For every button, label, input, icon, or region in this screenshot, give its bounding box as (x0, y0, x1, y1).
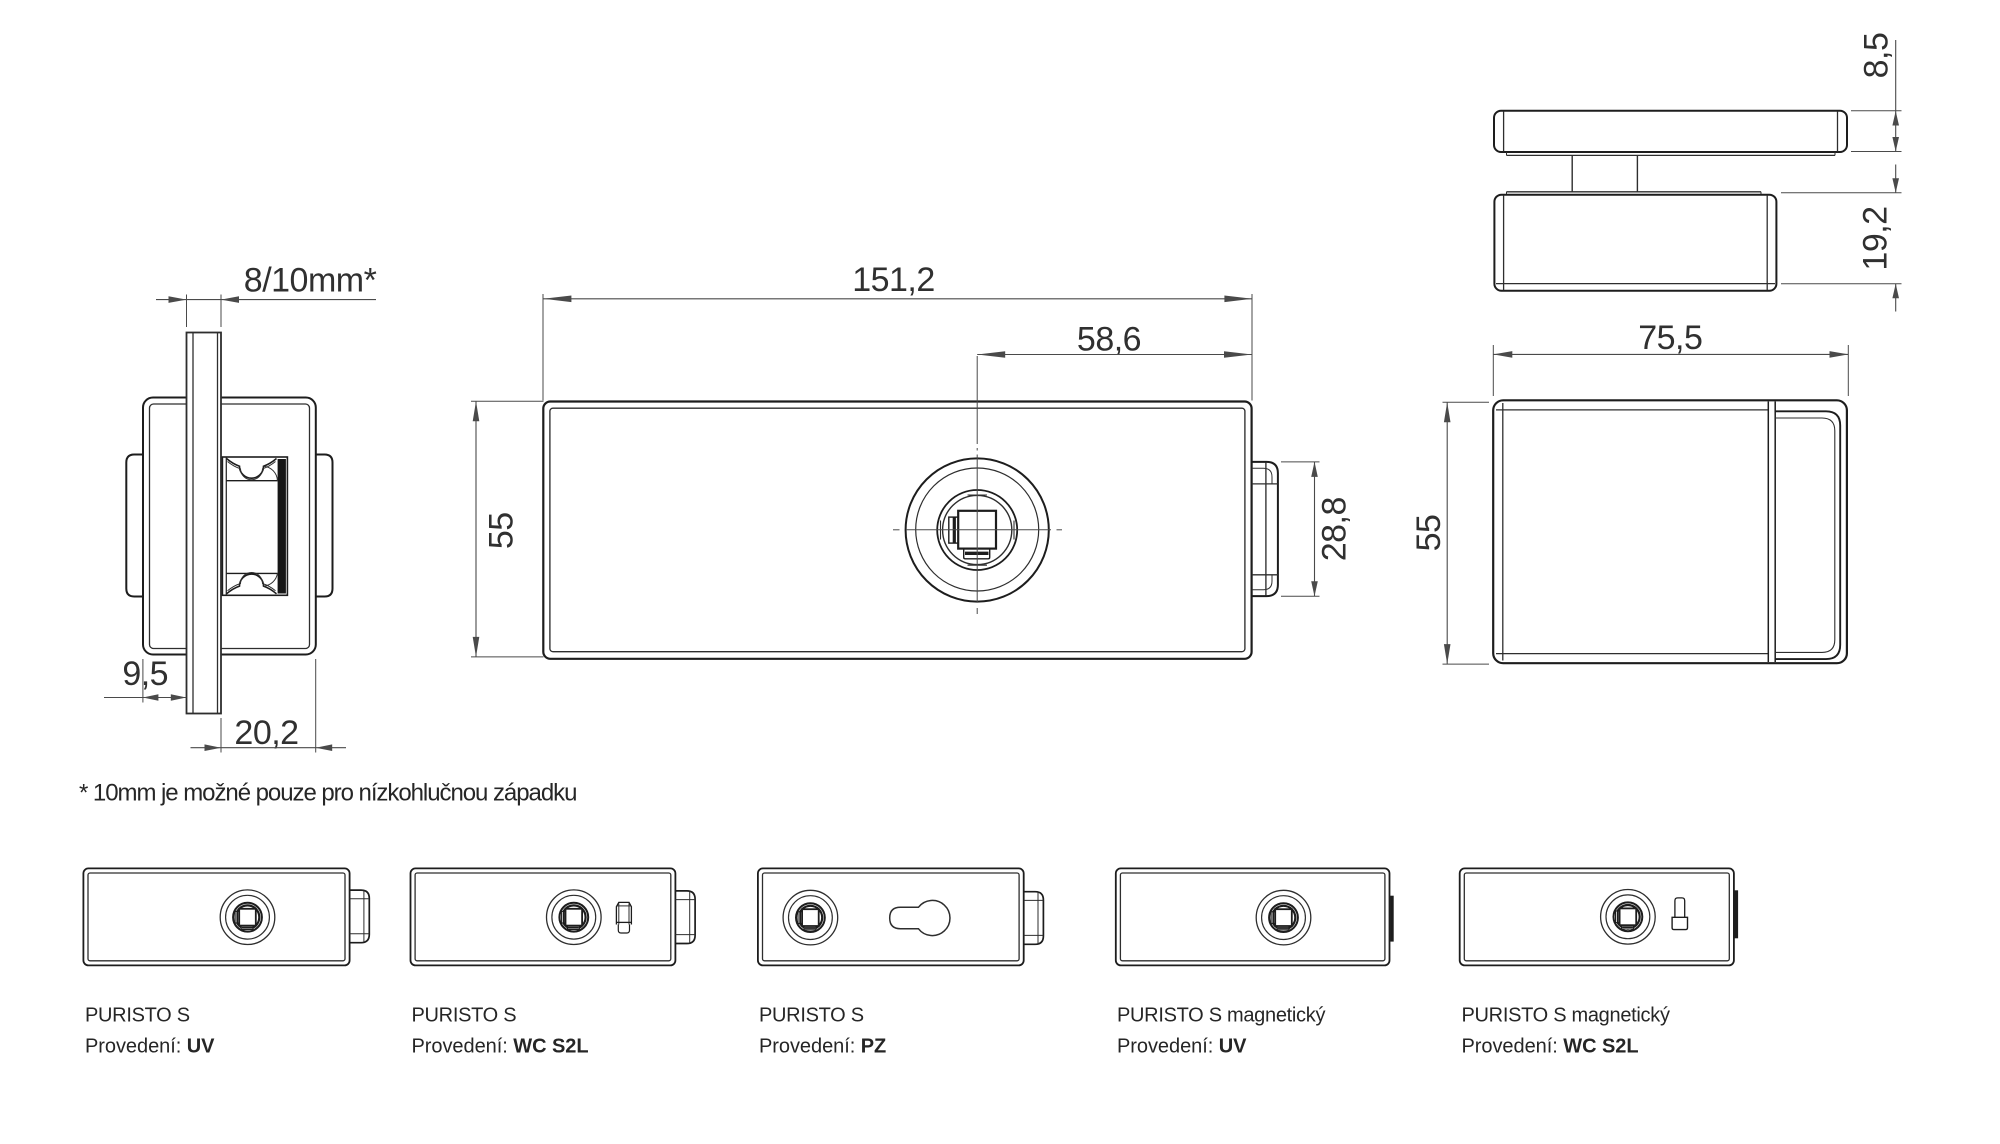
svg-text:58,6: 58,6 (1077, 321, 1141, 359)
svg-text:55: 55 (483, 512, 521, 549)
svg-text:Provedení: UV: Provedení: UV (85, 1036, 215, 1058)
svg-text:8/10mm*: 8/10mm* (244, 262, 377, 300)
svg-text:19,2: 19,2 (1857, 206, 1895, 270)
svg-text:9,5: 9,5 (122, 655, 168, 693)
svg-text:8,5: 8,5 (1858, 33, 1896, 79)
svg-text:Provedení: UV: Provedení: UV (1117, 1036, 1247, 1058)
svg-text:75,5: 75,5 (1638, 319, 1702, 357)
svg-text:PURISTO S: PURISTO S (85, 1005, 190, 1027)
svg-text:20,2: 20,2 (234, 714, 298, 752)
svg-text:* 10mm je možné pouze pro nízk: * 10mm je možné pouze pro nízkohlučnou z… (79, 780, 576, 807)
svg-text:PURISTO S: PURISTO S (759, 1005, 864, 1027)
svg-text:Provedení: PZ: Provedení: PZ (759, 1036, 886, 1058)
svg-text:151,2: 151,2 (852, 261, 935, 299)
svg-text:Provedení: WC S2L: Provedení: WC S2L (412, 1036, 589, 1058)
svg-text:PURISTO S magnetický: PURISTO S magnetický (1117, 1005, 1325, 1027)
svg-text:PURISTO S magnetický: PURISTO S magnetický (1462, 1005, 1670, 1027)
svg-text:Provedení: WC S2L: Provedení: WC S2L (1462, 1036, 1639, 1058)
svg-text:28,8: 28,8 (1316, 497, 1354, 561)
svg-text:PURISTO S: PURISTO S (412, 1005, 517, 1027)
svg-text:55: 55 (1410, 515, 1448, 552)
